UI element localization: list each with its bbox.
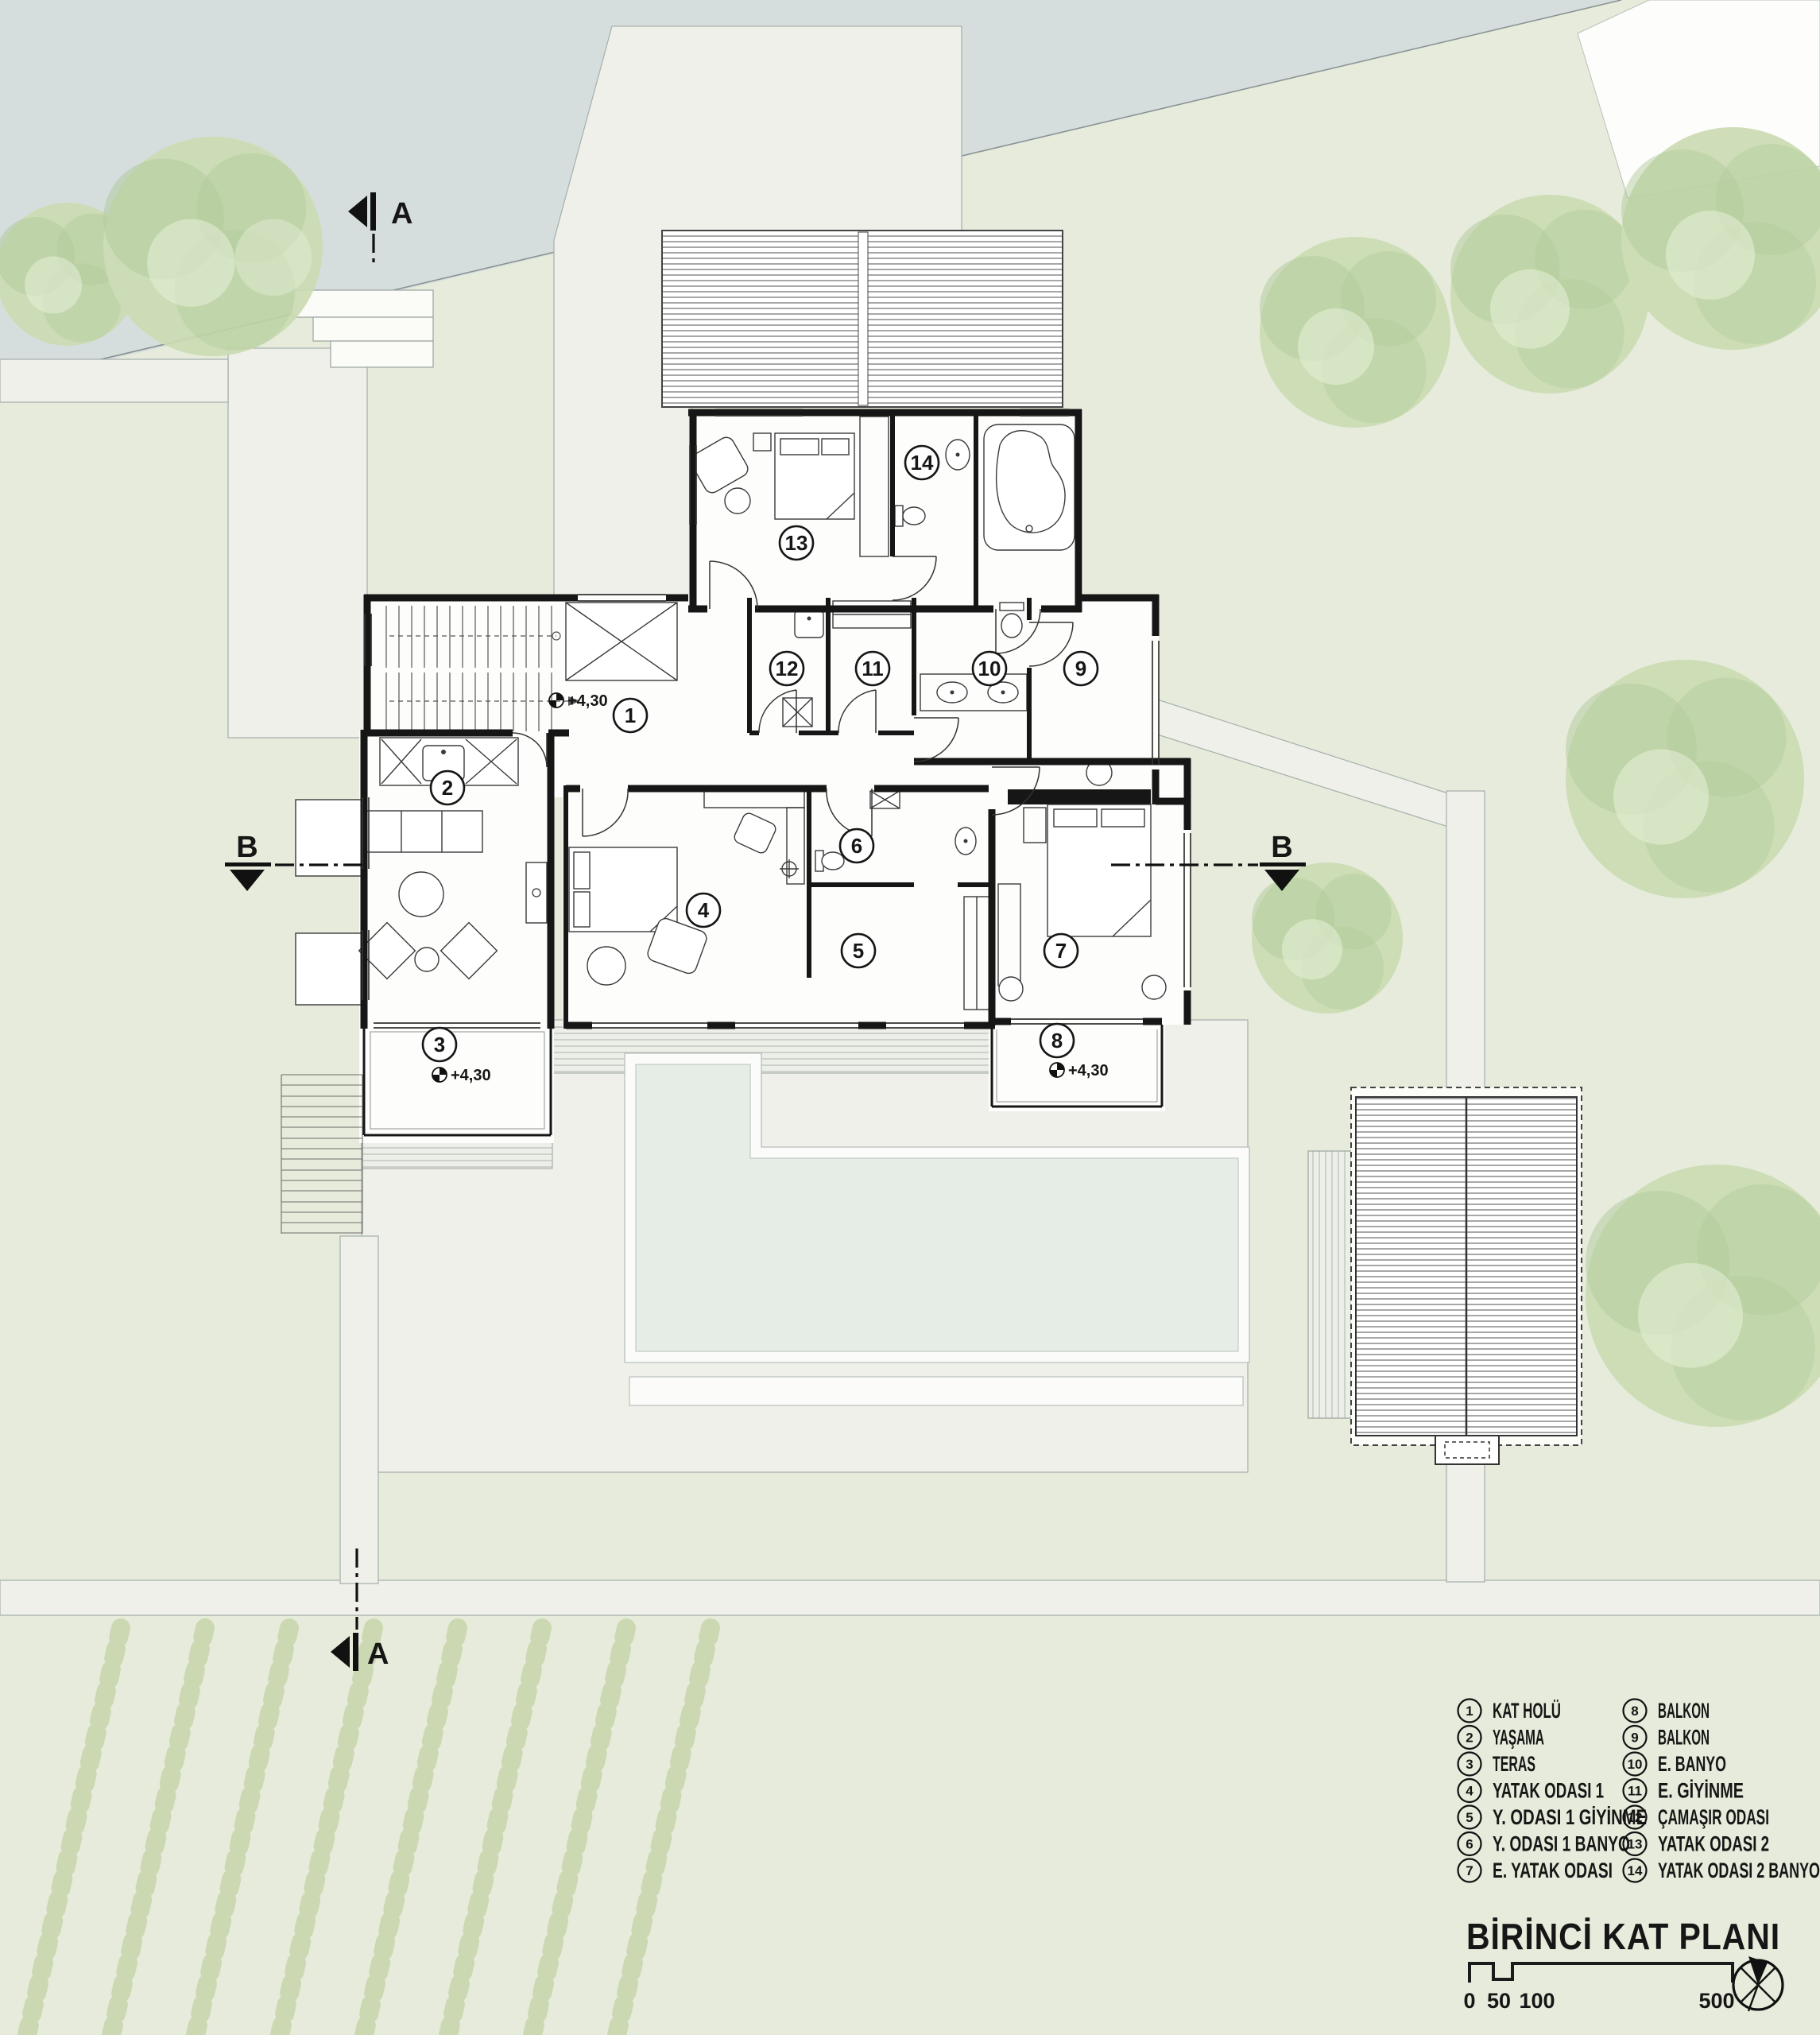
legend-label: KAT HOLÜ <box>1493 1699 1561 1723</box>
legend-label: YATAK ODASI 2 BANYO <box>1658 1859 1820 1882</box>
legend-number: 13 <box>1628 1837 1643 1852</box>
guesthouse-deck <box>1308 1151 1354 1418</box>
elevator-shaft <box>566 603 677 680</box>
legend-label: TERAS <box>1493 1752 1535 1776</box>
room-number: 7 <box>1055 939 1067 963</box>
scale-label: 50 <box>1487 1989 1511 2013</box>
side-table <box>415 948 439 971</box>
scale-label: 500 <box>1698 1989 1734 2013</box>
room-bubble: 7 <box>1044 934 1078 967</box>
room-number: 14 <box>911 451 934 475</box>
fireplace <box>526 862 547 923</box>
tree <box>1450 195 1649 393</box>
legend-label: YATAK ODASI 2 <box>1658 1832 1769 1856</box>
side-table <box>725 488 750 514</box>
legend-number: 4 <box>1466 1784 1473 1799</box>
legend-label: Y. ODASI 1 BANYO <box>1493 1832 1630 1856</box>
left-court <box>228 348 367 738</box>
room-bubble: 8 <box>1040 1024 1074 1057</box>
garden-path-vertical <box>340 1236 378 1583</box>
floor-plan-canvas: A A B B BİRİNCİ KAT PLANI 0 50 100 500 1… <box>0 0 1820 2035</box>
room-number: 12 <box>776 657 799 680</box>
washer <box>783 698 812 727</box>
legend-label: BALKON <box>1658 1726 1710 1750</box>
scale-label: 0 <box>1463 1989 1475 2013</box>
tree <box>1252 862 1403 1014</box>
toilet <box>895 506 925 526</box>
legend-number: 9 <box>1631 1731 1638 1746</box>
room-bubble: 10 <box>973 652 1006 685</box>
bed <box>775 433 854 519</box>
room-number: 5 <box>853 939 864 963</box>
room-number: 1 <box>625 704 636 727</box>
pouf <box>999 977 1023 1001</box>
legend-number: 12 <box>1628 1810 1643 1825</box>
tree <box>1566 660 1804 898</box>
legend-label: YATAK ODASI 1 <box>1493 1779 1604 1803</box>
legend-number: 1 <box>1466 1704 1473 1719</box>
washer <box>870 791 900 808</box>
room-bubble: 9 <box>1064 652 1098 685</box>
room-number: 4 <box>698 898 710 922</box>
section-letter: B <box>1271 831 1292 864</box>
main-roof <box>662 231 1063 407</box>
bay-window <box>296 933 364 1005</box>
room-bubble: 12 <box>770 652 804 685</box>
level-value: +4,30 <box>1068 1062 1109 1080</box>
scale-label: 100 <box>1519 1989 1555 2013</box>
room-bubble: 3 <box>423 1028 456 1061</box>
room-bubble: 6 <box>840 829 873 862</box>
room-number: 9 <box>1075 657 1086 680</box>
legend-number: 14 <box>1628 1863 1643 1878</box>
legend-number: 5 <box>1466 1810 1473 1825</box>
tree <box>1260 237 1450 428</box>
legend-number: 2 <box>1466 1731 1473 1746</box>
section-letter: A <box>391 197 412 231</box>
room-bubble: 11 <box>856 652 889 685</box>
room-number: 3 <box>434 1033 445 1056</box>
legend-label: E. YATAK ODASI <box>1493 1859 1613 1882</box>
legend-number: 7 <box>1466 1863 1473 1878</box>
jacuzzi <box>984 424 1075 550</box>
room-number: 10 <box>978 657 1001 680</box>
toilet <box>1000 603 1024 638</box>
room-number: 2 <box>442 776 453 800</box>
legend-number: 6 <box>1466 1837 1473 1852</box>
legend-label: ÇAMAŞIR ODASI <box>1658 1805 1769 1829</box>
legend-number: 10 <box>1628 1757 1643 1772</box>
tree <box>103 137 323 356</box>
bed <box>569 847 677 932</box>
legend-label: YAŞAMA <box>1493 1726 1544 1750</box>
legend-number: 3 <box>1466 1757 1473 1772</box>
room-number: 8 <box>1051 1029 1063 1052</box>
room-bubble: 4 <box>687 893 720 927</box>
page-title: BİRİNCİ KAT PLANI <box>1466 1916 1780 1957</box>
level-value: +4,30 <box>451 1067 491 1084</box>
level-value: +4,30 <box>567 692 608 710</box>
room-bubble: 1 <box>614 699 647 732</box>
pool-slab <box>629 1377 1243 1405</box>
coffee-table <box>399 872 443 917</box>
room-number: 6 <box>851 834 862 858</box>
left-path <box>0 359 228 402</box>
pouf <box>1142 975 1166 999</box>
laundry-sink <box>795 610 823 638</box>
sofa <box>362 811 482 852</box>
bed <box>1047 804 1151 936</box>
room-number: 11 <box>862 657 884 680</box>
legend-number: 8 <box>1631 1704 1638 1719</box>
room-bubble: 14 <box>905 446 939 479</box>
room-number: 13 <box>785 531 808 555</box>
toilet <box>815 851 844 871</box>
legend-label: E. BANYO <box>1658 1752 1726 1776</box>
room-bubble: 5 <box>842 934 875 967</box>
legend-label: BALKON <box>1658 1699 1710 1723</box>
legend-label: E. GİYİNME <box>1658 1779 1744 1803</box>
room-bubble: 2 <box>431 771 464 804</box>
bottom-path <box>0 1580 1820 1615</box>
legend-number: 11 <box>1628 1784 1642 1799</box>
side-table <box>587 947 625 985</box>
room-bubble: 13 <box>780 526 813 560</box>
section-letter: B <box>236 831 258 864</box>
section-letter: A <box>367 1638 389 1671</box>
wood-deck-terrace <box>362 1140 552 1169</box>
